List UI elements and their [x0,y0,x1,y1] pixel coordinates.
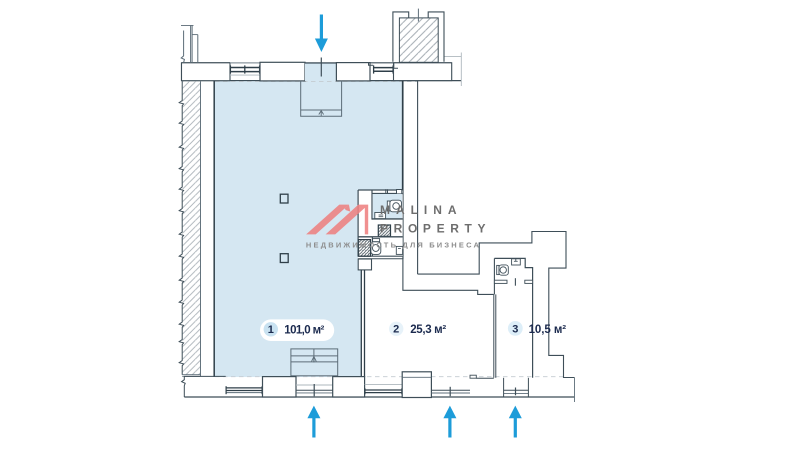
svg-text:2: 2 [393,324,399,336]
svg-text:PROPERTY: PROPERTY [380,222,486,236]
svg-text:3: 3 [512,323,518,335]
svg-text:10,5 м²: 10,5 м² [529,324,567,336]
svg-text:НЕДВИЖИМОСТЬ ДЛЯ БИЗНЕСА: НЕДВИЖИМОСТЬ ДЛЯ БИЗНЕСА [306,240,480,249]
svg-text:25,3 м²: 25,3 м² [410,324,446,336]
svg-text:1: 1 [268,324,274,336]
svg-text:101,0 м²: 101,0 м² [284,324,324,336]
